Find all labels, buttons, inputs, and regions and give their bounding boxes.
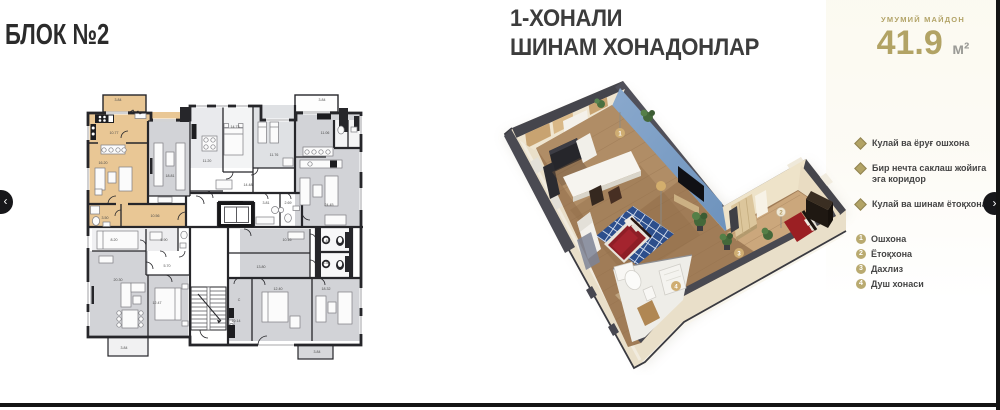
svg-text:13.80: 13.80	[257, 265, 266, 269]
svg-text:1.45: 1.45	[323, 239, 330, 243]
svg-text:C: C	[238, 298, 241, 302]
svg-text:3.84: 3.84	[314, 350, 321, 354]
svg-text:12.40: 12.40	[274, 287, 283, 291]
svg-text:18.32: 18.32	[322, 287, 331, 291]
svg-text:11.76: 11.76	[270, 153, 279, 157]
svg-text:12.47: 12.47	[153, 301, 162, 305]
svg-text:2.69: 2.69	[285, 201, 292, 205]
svg-text:10.77: 10.77	[110, 131, 119, 135]
svg-text:14.48: 14.48	[244, 183, 253, 187]
svg-text:8.20: 8.20	[111, 238, 118, 242]
svg-text:3.84: 3.84	[121, 346, 128, 350]
svg-text:3.84: 3.84	[319, 98, 326, 102]
svg-text:10.16: 10.16	[283, 238, 292, 242]
svg-text:16.20: 16.20	[99, 161, 108, 165]
svg-text:18.81: 18.81	[166, 174, 175, 178]
svg-text:5.90: 5.90	[161, 238, 168, 242]
svg-text:3.84: 3.84	[115, 98, 122, 102]
svg-text:10.14: 10.14	[232, 319, 241, 323]
svg-text:3.50: 3.50	[102, 216, 109, 220]
svg-text:24.45: 24.45	[325, 203, 334, 207]
svg-text:20.30: 20.30	[114, 278, 123, 282]
svg-text:11.06: 11.06	[321, 131, 330, 135]
svg-text:3.81: 3.81	[263, 201, 270, 205]
svg-text:11.20: 11.20	[203, 159, 212, 163]
svg-text:10.56: 10.56	[151, 214, 160, 218]
svg-text:14.73: 14.73	[231, 125, 240, 129]
svg-text:5.70: 5.70	[164, 264, 171, 268]
svg-text:3.30: 3.30	[323, 261, 330, 265]
